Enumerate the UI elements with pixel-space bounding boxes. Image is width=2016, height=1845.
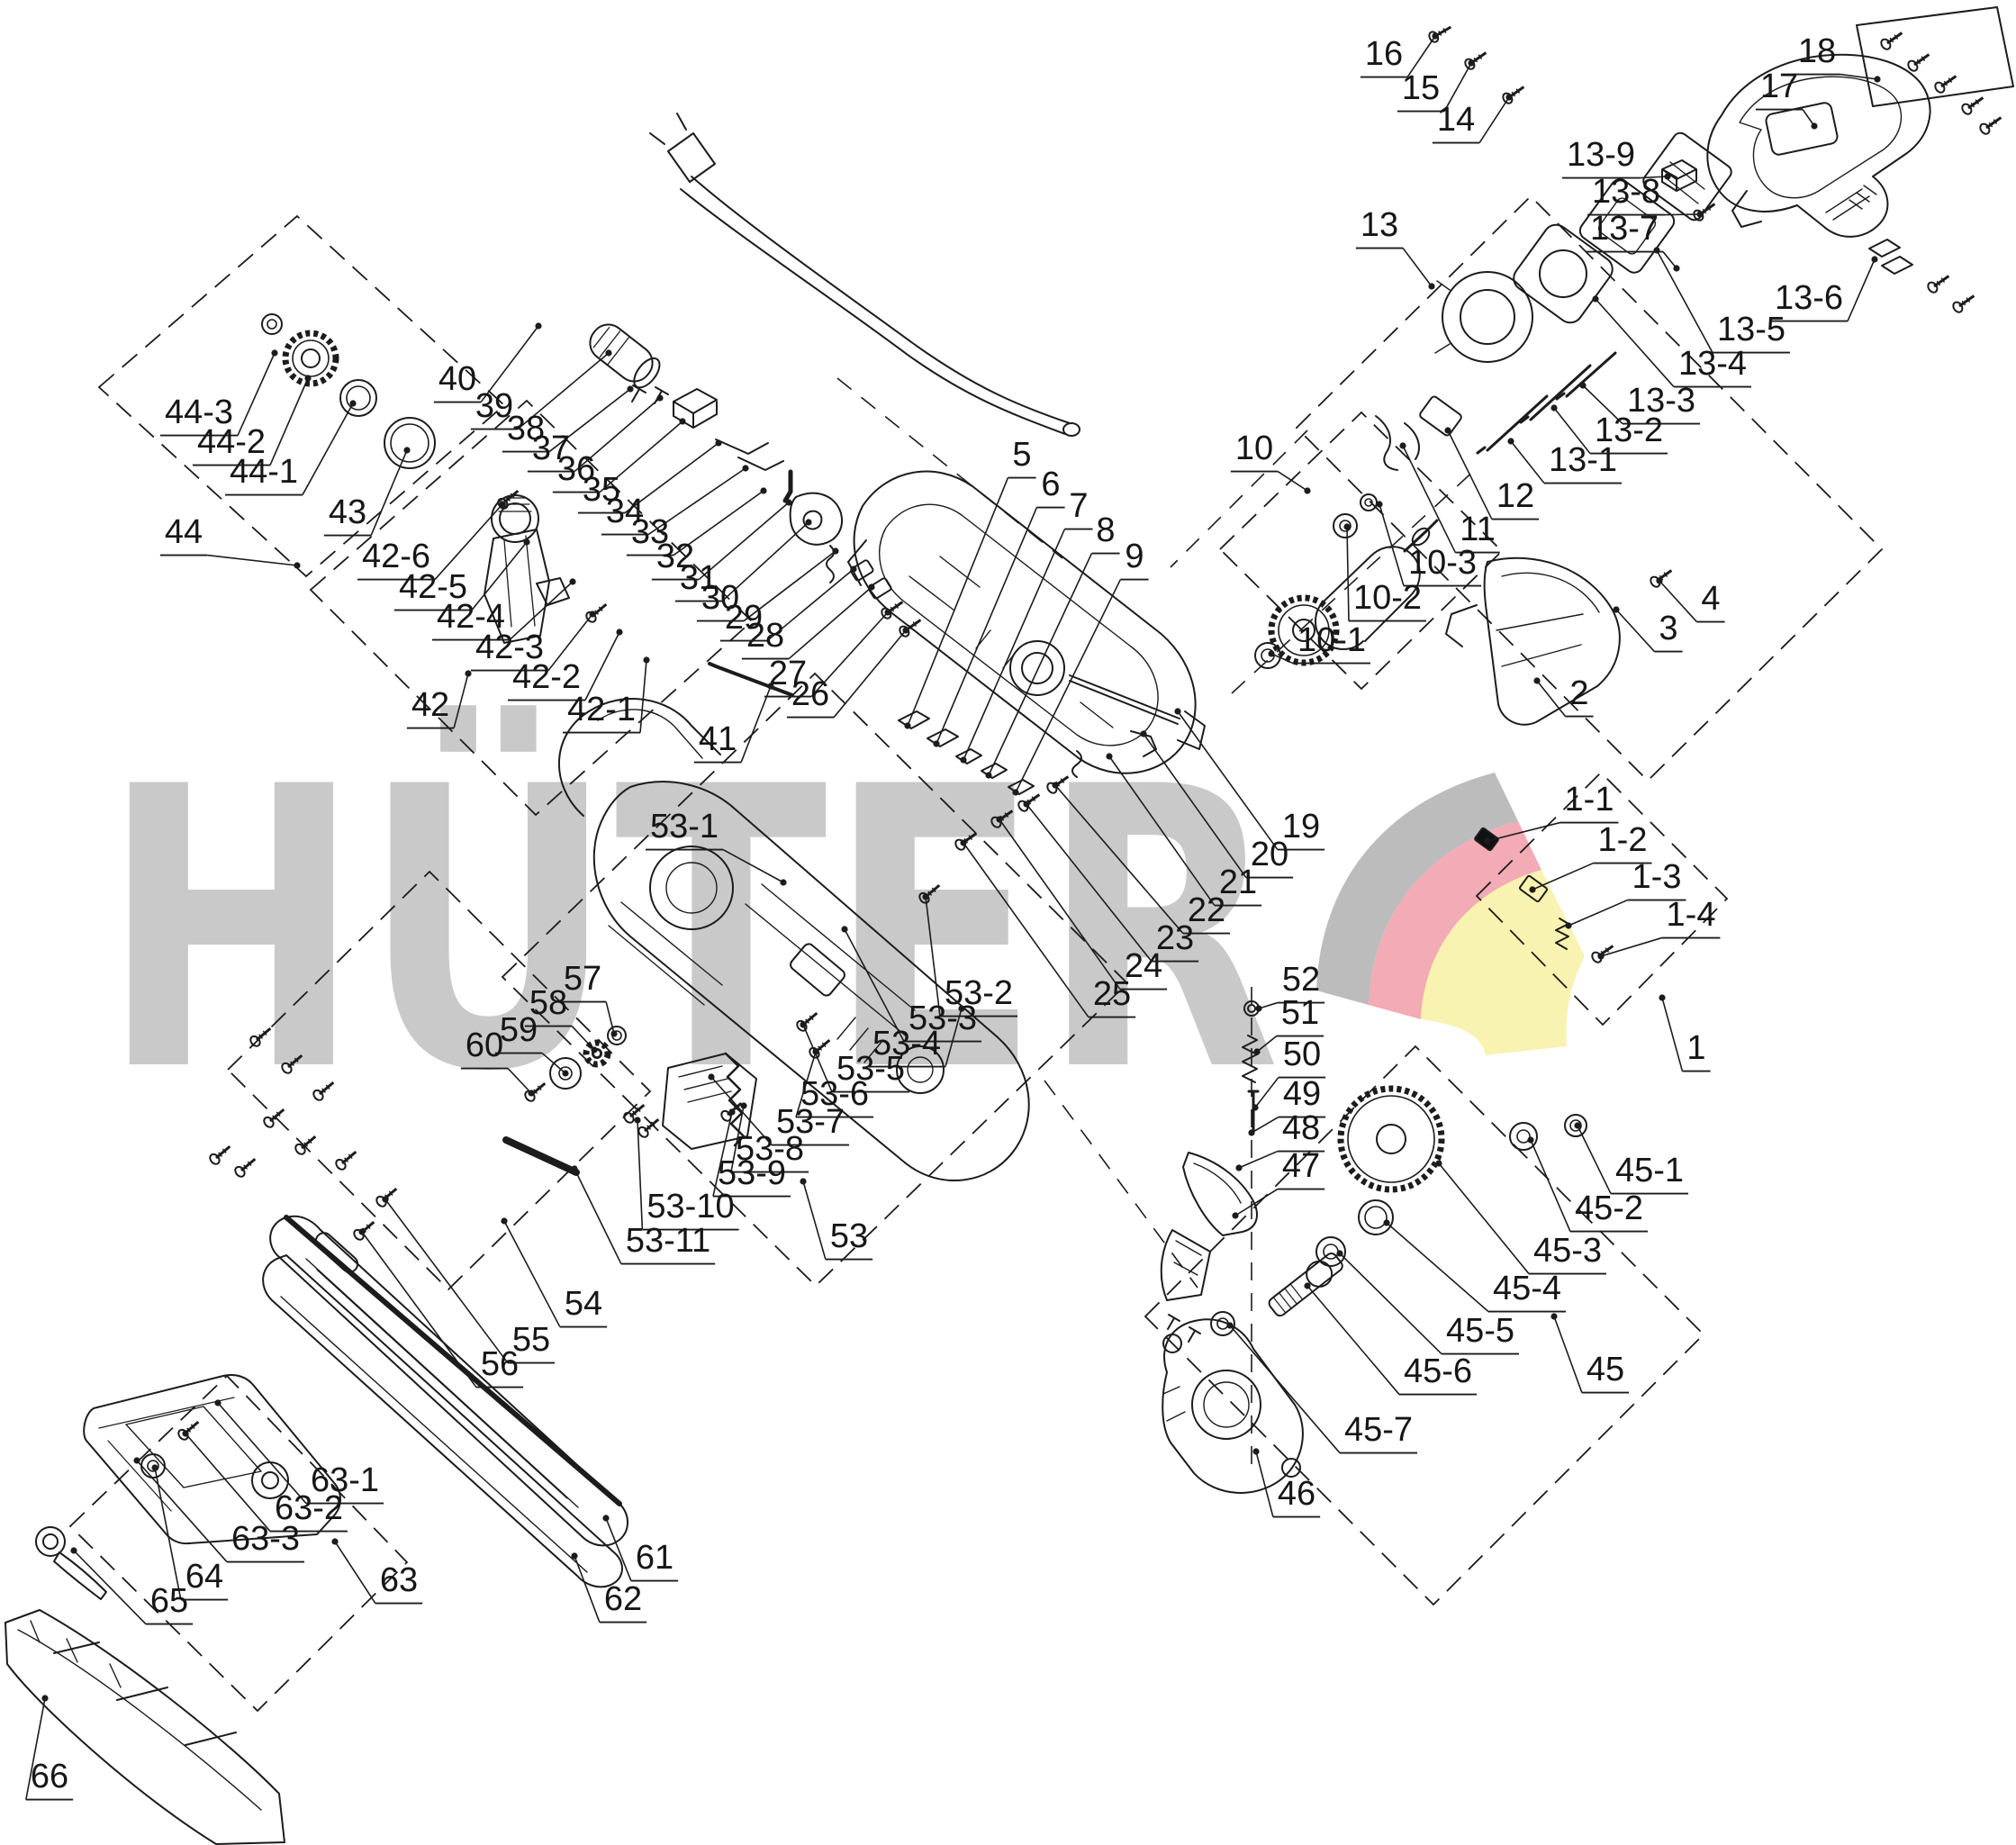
leader-dot xyxy=(841,926,847,932)
leader-dot xyxy=(41,1695,48,1701)
part-number-text: 63 xyxy=(380,1561,418,1599)
part-number-text: 62 xyxy=(604,1580,642,1618)
leader-line xyxy=(1848,259,1875,321)
part-label-53: 53 xyxy=(800,1178,872,1259)
leader-line xyxy=(362,1232,476,1388)
leader-dot xyxy=(780,879,786,885)
part-number-text: 26 xyxy=(791,675,829,713)
leader-dot xyxy=(70,1547,77,1553)
part-number-text: 44-1 xyxy=(230,453,298,491)
leader-dot xyxy=(610,1030,617,1036)
washer-glyph xyxy=(340,380,376,416)
leader-dot xyxy=(501,1217,507,1224)
part-number-text: 4 xyxy=(1701,580,1720,618)
screw-glyph xyxy=(352,1218,377,1242)
leader-line xyxy=(218,1403,306,1504)
leader-line xyxy=(504,1221,560,1327)
part-number-text: 44 xyxy=(165,513,203,551)
leader-dot xyxy=(627,385,633,392)
leader-dot xyxy=(960,839,966,846)
leader-dot xyxy=(1376,501,1382,507)
part-number-text: 53-9 xyxy=(718,1154,786,1192)
leader-dot xyxy=(182,1430,188,1436)
part-number-text: 45-1 xyxy=(1615,1152,1684,1189)
leader-dot xyxy=(1871,256,1877,262)
screw-glyph xyxy=(1879,29,1905,51)
part-label-55: 55 xyxy=(382,1196,555,1362)
leader-line xyxy=(1531,1140,1570,1232)
part-number-text: 10 xyxy=(1235,430,1273,467)
leader-dot xyxy=(1252,1104,1258,1110)
leader-dot xyxy=(643,656,649,663)
leader-dot xyxy=(1226,1322,1233,1328)
leader-dot xyxy=(1444,427,1451,433)
leader-line xyxy=(1278,472,1307,491)
part-number-text: 25 xyxy=(1093,975,1131,1013)
leader-dot xyxy=(1140,730,1146,737)
leader-dot xyxy=(1653,247,1659,253)
rear-handle-drawing xyxy=(1707,55,1930,237)
leader-dot xyxy=(884,609,890,615)
screw-glyph xyxy=(1960,94,1986,116)
part-label-1: 1 xyxy=(1659,994,1710,1071)
leader-dot xyxy=(1252,1448,1259,1454)
part-number-text: 54 xyxy=(565,1285,602,1323)
part-label-33: 33 xyxy=(627,487,767,555)
leader-dot xyxy=(1235,1164,1242,1171)
screw-glyph xyxy=(1933,72,1959,95)
gear-glyph xyxy=(285,333,336,384)
huter-swoosh-logo xyxy=(1316,773,1585,1055)
leader-line xyxy=(834,630,906,718)
leader-dot xyxy=(850,565,856,572)
part-number-text: 17 xyxy=(1760,68,1798,105)
part-number-text: 5 xyxy=(1012,436,1031,474)
washer-glyph xyxy=(262,314,282,334)
leader-dot xyxy=(715,439,721,446)
gear-glyph xyxy=(1341,1089,1442,1189)
part-label-64: 64 xyxy=(151,1464,228,1599)
leader-dot xyxy=(523,538,529,545)
part-label-61: 61 xyxy=(602,1515,678,1580)
leader-dot xyxy=(571,1165,577,1171)
part-label-13-1: 13-1 xyxy=(1507,438,1622,483)
part-label-3: 3 xyxy=(1613,606,1682,651)
part-label-13-6: 13-6 xyxy=(1770,256,1878,321)
leader-line xyxy=(1340,1253,1442,1354)
leader-dot xyxy=(1232,1212,1238,1218)
leader-dot xyxy=(571,1552,577,1559)
part-label-54: 54 xyxy=(501,1217,607,1326)
part-number-text: 45-4 xyxy=(1493,1270,1561,1307)
part-number-text: 13-7 xyxy=(1590,210,1659,248)
leader-dot xyxy=(1505,94,1512,100)
leader-line xyxy=(1439,1163,1529,1274)
parts-diagram-canvas: HÜTER xyxy=(0,0,2016,1845)
screw-glyph xyxy=(1427,23,1453,44)
washer-glyph xyxy=(1359,1200,1393,1235)
part-number-text: 13-9 xyxy=(1567,136,1635,174)
leader-line xyxy=(1569,900,1628,926)
part-label-13: 13 xyxy=(1356,206,1435,290)
part-number-text: 66 xyxy=(31,1758,68,1795)
leader-dot xyxy=(933,740,939,746)
part-label-13-7: 13-7 xyxy=(1586,210,1680,272)
leader-dot xyxy=(1253,1048,1260,1054)
leader-dot xyxy=(382,1196,388,1202)
leader-dot xyxy=(294,562,300,568)
leader-line xyxy=(303,403,353,495)
part-number-text: 45-5 xyxy=(1446,1312,1514,1350)
wrench-drawing xyxy=(36,1527,106,1599)
leader-dot xyxy=(1597,953,1604,959)
washer-glyph xyxy=(1361,494,1377,511)
leader-dot xyxy=(1527,1136,1533,1143)
part-number-text: 16 xyxy=(1365,35,1403,73)
leader-dot xyxy=(958,1005,964,1011)
part-number-text: 64 xyxy=(185,1558,223,1596)
part-number-text: 13-8 xyxy=(1592,173,1660,211)
leader-dot xyxy=(331,1538,338,1544)
part-number-text: 45-3 xyxy=(1533,1232,1602,1270)
leader-dot xyxy=(499,501,505,507)
leader-dot xyxy=(1507,438,1514,444)
leader-line xyxy=(1256,1452,1273,1517)
part-label-12: 12 xyxy=(1444,427,1539,519)
leader-dot xyxy=(535,322,541,329)
part-number-text: 42-1 xyxy=(567,691,636,728)
leader-dot xyxy=(708,1073,714,1080)
part-number-text: 10-1 xyxy=(1297,621,1366,659)
cord-guard-drawing xyxy=(583,318,665,393)
part-number-text: 65 xyxy=(150,1582,188,1620)
part-number-text: 42 xyxy=(411,686,449,724)
leader-line xyxy=(1665,214,1700,215)
part-number-text: 59 xyxy=(500,1011,538,1049)
screw-glyph xyxy=(375,1185,400,1208)
leader-line xyxy=(1554,1316,1582,1393)
exploded-diagram-svg: HÜTER xyxy=(0,0,2016,1845)
part-label-14: 14 xyxy=(1433,94,1513,142)
leader-dot xyxy=(1811,122,1817,129)
leader-dot xyxy=(605,349,611,356)
part-number-text: 7 xyxy=(1069,487,1088,525)
leader-dot xyxy=(800,1021,806,1027)
screw-glyph xyxy=(1926,272,1952,294)
leader-dot xyxy=(1428,283,1434,289)
part-number-text: 14 xyxy=(1437,101,1475,139)
part-number-text: 45-2 xyxy=(1575,1189,1643,1227)
leader-line xyxy=(574,1556,600,1623)
leader-dot xyxy=(1336,1250,1342,1256)
leader-dot xyxy=(304,375,311,381)
part-number-text: 3 xyxy=(1659,610,1677,647)
part-number-text: 13-4 xyxy=(1678,345,1747,383)
leader-dot xyxy=(656,394,663,401)
part-number-text: 15 xyxy=(1402,69,1440,107)
part-label-56: 56 xyxy=(358,1228,523,1387)
part-number-text: 1-2 xyxy=(1598,821,1648,859)
leader-line xyxy=(789,587,872,659)
leader-dot xyxy=(1023,800,1029,807)
part-number-text: 43 xyxy=(329,493,366,531)
leader-dot xyxy=(1565,922,1571,928)
part-label-43: 43 xyxy=(324,447,411,535)
leader-dot xyxy=(1613,606,1619,612)
part-number-text: 56 xyxy=(481,1345,519,1383)
leader-line xyxy=(1578,1126,1611,1194)
part-label-44: 44 xyxy=(160,513,301,569)
leader-line xyxy=(1537,681,1565,717)
part-number-text: 49 xyxy=(1283,1075,1321,1113)
part-number-text: 46 xyxy=(1278,1475,1315,1513)
leader-dot xyxy=(1673,265,1679,271)
leader-dot xyxy=(634,1117,640,1123)
part-number-text: 9 xyxy=(1125,538,1144,575)
leader-line xyxy=(385,1199,508,1363)
leader-dot xyxy=(1696,211,1703,217)
part-label-32: 32 xyxy=(652,499,792,579)
screw-glyph xyxy=(1906,50,1932,73)
part-label-31: 31 xyxy=(675,519,812,601)
leader-dot xyxy=(358,1228,365,1235)
leader-line xyxy=(1448,430,1492,520)
part-number-text: 51 xyxy=(1281,994,1319,1032)
part-label-17: 17 xyxy=(1756,68,1818,130)
leader-dot xyxy=(1304,487,1310,493)
screw-glyph xyxy=(1463,49,1489,71)
leader-dot xyxy=(616,629,622,635)
leader-dot xyxy=(785,499,791,505)
part-label-10-1: 10-1 xyxy=(1268,621,1370,664)
part-number-text: 41 xyxy=(699,720,737,758)
leader-dot xyxy=(812,1048,818,1054)
part-number-text: 61 xyxy=(636,1539,674,1577)
leader-dot xyxy=(602,1515,609,1521)
leader-dot xyxy=(922,893,928,900)
leader-dot xyxy=(960,756,966,763)
part-label-28: 28 xyxy=(742,583,875,658)
part-number-text: 18 xyxy=(1798,32,1836,70)
part-label-13-5: 13-5 xyxy=(1653,247,1790,352)
screw-plate-drawing xyxy=(1857,7,2013,106)
leader-line xyxy=(1403,249,1432,286)
leader-dot xyxy=(868,583,874,590)
part-label-2: 2 xyxy=(1533,674,1593,717)
leader-line xyxy=(137,1461,227,1562)
part-number-text: 11 xyxy=(1460,511,1495,548)
leader-line xyxy=(1347,527,1349,621)
part-label-63: 63 xyxy=(331,1538,422,1603)
leader-dot xyxy=(996,816,1002,822)
leader-dot xyxy=(1304,1282,1310,1289)
leader-dot xyxy=(1574,1122,1580,1128)
leader-line xyxy=(1616,610,1654,652)
leader-line xyxy=(335,1542,375,1604)
leader-dot xyxy=(1592,295,1598,302)
leader-dot xyxy=(1550,1313,1557,1319)
part-number-text: 13-5 xyxy=(1717,311,1785,348)
hand-guard-drawing xyxy=(1446,558,1620,725)
leader-dot xyxy=(832,547,838,554)
leader-dot xyxy=(1106,753,1112,759)
part-number-text: 2 xyxy=(1569,674,1588,712)
part-number-text: 10-2 xyxy=(1353,579,1422,617)
leader-dot xyxy=(1468,59,1474,66)
part-number-text: 48 xyxy=(1282,1109,1320,1147)
leader-line xyxy=(1230,1325,1340,1453)
scabbard-drawing xyxy=(5,1610,285,1844)
leader-dot xyxy=(1383,1219,1389,1225)
part-number-text: 28 xyxy=(746,617,784,655)
part-number-text: 53-10 xyxy=(646,1188,734,1225)
part-label-29: 29 xyxy=(720,565,857,640)
leader-dot xyxy=(679,418,685,424)
leader-dot xyxy=(1052,782,1058,788)
part-number-text: 1-3 xyxy=(1632,858,1682,896)
part-number-text: 53 xyxy=(830,1217,868,1255)
screw-glyph xyxy=(1649,566,1675,589)
part-number-text: 47 xyxy=(1282,1147,1320,1185)
leader-dot xyxy=(562,1070,568,1076)
leader-dot xyxy=(271,349,277,356)
screw-glyph xyxy=(1978,113,2004,136)
leader-dot xyxy=(1343,523,1350,529)
leader-line xyxy=(1596,299,1674,387)
part-number-text: 45-7 xyxy=(1344,1411,1413,1449)
screw-glyph xyxy=(1692,200,1718,222)
leader-dot xyxy=(1268,650,1274,656)
part-number-text: 53-1 xyxy=(650,808,719,846)
part-number-text: 63-3 xyxy=(231,1520,300,1558)
leader-line xyxy=(155,1468,181,1600)
part-label-45: 45 xyxy=(1550,1313,1629,1392)
leader-dot xyxy=(1874,76,1880,82)
leader-line xyxy=(1479,97,1509,143)
part-number-text: 6 xyxy=(1041,466,1060,503)
washer-glyph xyxy=(384,418,435,468)
leader-dot xyxy=(591,1046,597,1053)
leader-dot xyxy=(1432,32,1438,39)
leader-dot xyxy=(133,1457,140,1463)
leader-dot xyxy=(1255,1005,1261,1011)
part-number-text: 53-11 xyxy=(626,1222,710,1260)
leader-dot xyxy=(403,447,410,453)
part-number-text: 60 xyxy=(466,1027,503,1064)
part-label-45-5: 45-5 xyxy=(1336,1250,1519,1353)
leader-dot xyxy=(1435,1160,1442,1166)
leader-dot xyxy=(1579,382,1586,388)
leader-dot xyxy=(1399,442,1406,448)
part-number-text: 8 xyxy=(1096,511,1115,549)
leader-dot xyxy=(1533,677,1540,683)
leader-line xyxy=(803,1181,826,1260)
leader-line xyxy=(1307,1286,1399,1395)
leader-dot xyxy=(1012,789,1018,795)
leader-line xyxy=(1657,250,1713,353)
leader-dot xyxy=(1656,577,1662,583)
leader-dot xyxy=(728,1108,735,1115)
leader-dot xyxy=(465,670,471,676)
leader-dot xyxy=(985,772,991,778)
leader-dot xyxy=(904,722,910,728)
part-label-45-1: 45-1 xyxy=(1574,1122,1688,1193)
leader-dot xyxy=(902,627,909,633)
leader-dot xyxy=(742,465,748,471)
leader-dot xyxy=(589,610,595,617)
part-number-text: 1-4 xyxy=(1667,896,1716,934)
leader-line xyxy=(1387,1223,1488,1312)
part-number-text: 1-1 xyxy=(1565,781,1614,818)
leader-dot xyxy=(1248,1129,1254,1135)
leader-line xyxy=(1379,504,1404,586)
part-number-text: 1 xyxy=(1686,1029,1705,1067)
leader-dot xyxy=(1664,173,1670,179)
leader-dot xyxy=(1529,886,1535,892)
leader-dot xyxy=(1659,994,1665,1000)
trigger-drawing xyxy=(791,493,842,545)
leader-dot xyxy=(569,578,575,584)
leader-dot xyxy=(1174,708,1180,714)
leader-dot xyxy=(349,400,356,406)
leader-dot xyxy=(1484,837,1490,844)
leader-line xyxy=(1662,998,1682,1072)
gearbox-cover-drawing xyxy=(1162,1319,1303,1493)
part-number-text: 50 xyxy=(1283,1036,1321,1073)
leader-line xyxy=(908,478,1008,726)
part-number-text: 13-1 xyxy=(1549,441,1617,479)
screw-glyph xyxy=(1951,292,1977,314)
screw-glyph xyxy=(1501,83,1527,105)
leader-line xyxy=(574,1169,621,1264)
screw-glyph xyxy=(233,1155,258,1179)
part-number-text: 13 xyxy=(1361,206,1398,244)
part-number-text: 52 xyxy=(1282,961,1320,999)
part-label-37: 37 xyxy=(528,394,664,471)
part-number-text: 10-3 xyxy=(1408,544,1477,582)
part-number-text: 45-6 xyxy=(1404,1352,1472,1390)
part-number-text: 45 xyxy=(1587,1351,1624,1388)
part-number-text: 57 xyxy=(564,960,601,998)
part-label-65: 65 xyxy=(70,1547,193,1623)
part-number-text: 12 xyxy=(1496,477,1534,515)
power-cord-drawing xyxy=(650,113,1080,436)
leader-dot xyxy=(760,487,766,493)
part-number-text: 40 xyxy=(438,360,476,398)
leader-dot xyxy=(800,1178,806,1184)
leader-dot xyxy=(1550,404,1557,411)
leader-dot xyxy=(805,519,811,525)
leader-dot xyxy=(151,1464,158,1470)
leader-dot xyxy=(214,1399,221,1406)
leader-dot xyxy=(740,1102,746,1108)
leader-dot xyxy=(528,1090,534,1096)
